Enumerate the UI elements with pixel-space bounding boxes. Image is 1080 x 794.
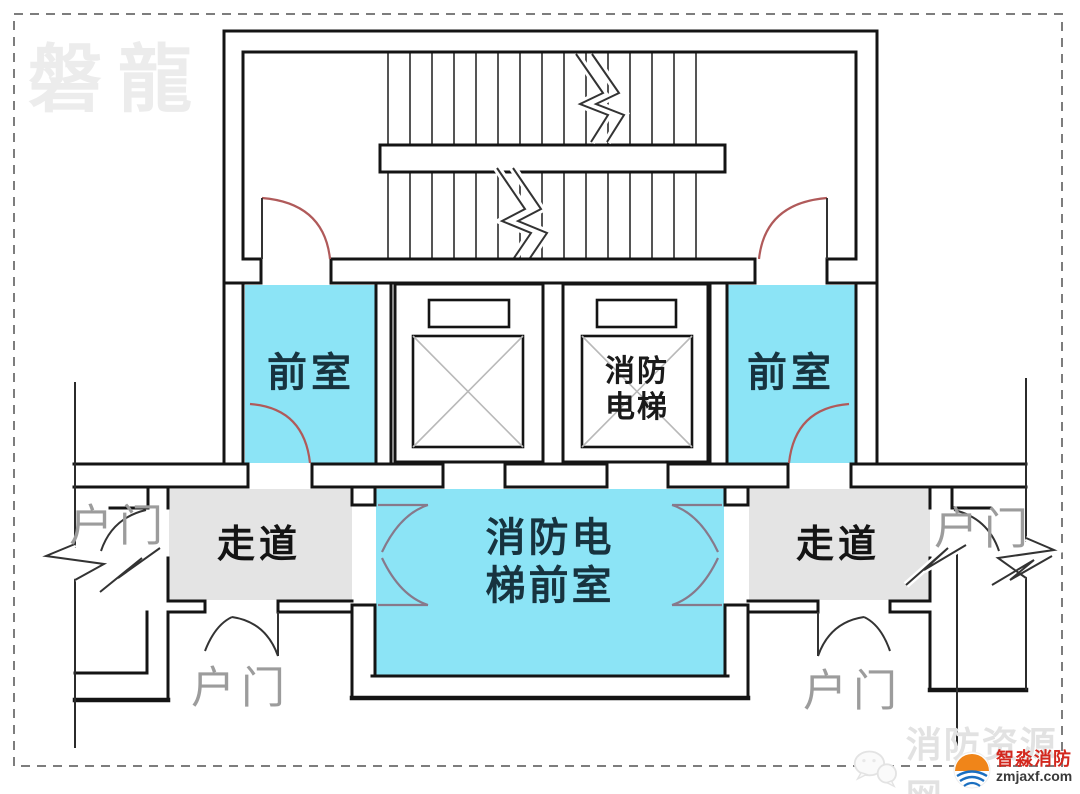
corridor-right-label: 走道 xyxy=(796,524,880,568)
counterweight-left xyxy=(429,300,509,327)
brand-domain: zmjaxf.com xyxy=(996,769,1072,784)
watermark-panlong: 磐龍 xyxy=(28,20,208,127)
brand-logo: 智淼消防 zmjaxf.com xyxy=(952,750,1072,790)
zhimiao-logo-icon xyxy=(952,750,992,790)
door-label-right: 户门 xyxy=(934,505,1034,556)
wechat-bubbles-icon xyxy=(852,746,900,790)
door-label-bottom-right: 户门 xyxy=(803,667,903,718)
corridor-left-label: 走道 xyxy=(217,524,301,568)
fire-elevator-label-line1: 消防 xyxy=(605,355,669,388)
lobby-label-line2: 梯前室 xyxy=(486,564,615,608)
front-room-left-label: 前室 xyxy=(267,350,355,396)
counterweight-right xyxy=(597,300,676,327)
front-room-right-label: 前室 xyxy=(747,350,835,396)
elevator-shaft-left xyxy=(395,284,543,462)
lobby-label-line1: 消防电 xyxy=(486,516,615,560)
brand-name: 智淼消防 xyxy=(996,750,1072,769)
door-label-bottom-left: 户门 xyxy=(191,664,291,715)
door-label-left: 户门 xyxy=(69,502,169,553)
fire-elevator-label: 消防电梯 xyxy=(605,354,669,426)
floor-plan-page: 磐龍 前室 前室 消防电梯 消防电梯前室 走道 走道 户门 户门 户门 户门 消… xyxy=(0,0,1080,794)
fire-elevator-lobby-label: 消防电梯前室 xyxy=(486,514,615,610)
room-fills xyxy=(169,285,930,676)
fire-elevator-label-line2: 电梯 xyxy=(605,391,669,424)
stair-landing xyxy=(380,145,725,172)
